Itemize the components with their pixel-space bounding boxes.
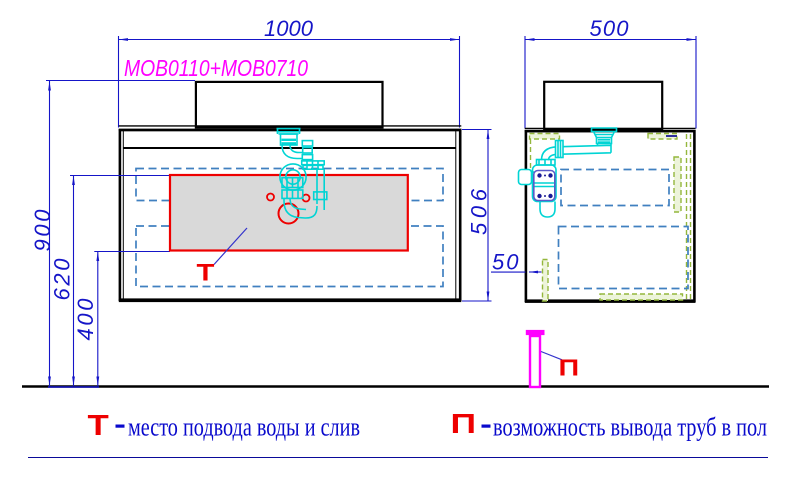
svg-text:400: 400 (73, 298, 98, 341)
svg-text:П: П (451, 408, 477, 439)
svg-text:MOB0110+MOB0710: MOB0110+MOB0710 (124, 55, 308, 81)
svg-text:П: П (559, 354, 580, 381)
svg-text:место подвода воды и слив: место подвода воды и слив (128, 413, 360, 442)
svg-text:Т: Т (197, 259, 216, 286)
svg-text:Т: Т (88, 409, 110, 442)
svg-text:900: 900 (30, 209, 55, 252)
svg-text:620: 620 (50, 258, 75, 301)
svg-text:возможность вывода труб в пол: возможность вывода труб в пол (493, 413, 767, 442)
svg-text:50: 50 (492, 250, 519, 275)
svg-text:506: 506 (467, 188, 492, 235)
svg-text:1000: 1000 (264, 16, 314, 41)
svg-text:500: 500 (590, 16, 630, 41)
